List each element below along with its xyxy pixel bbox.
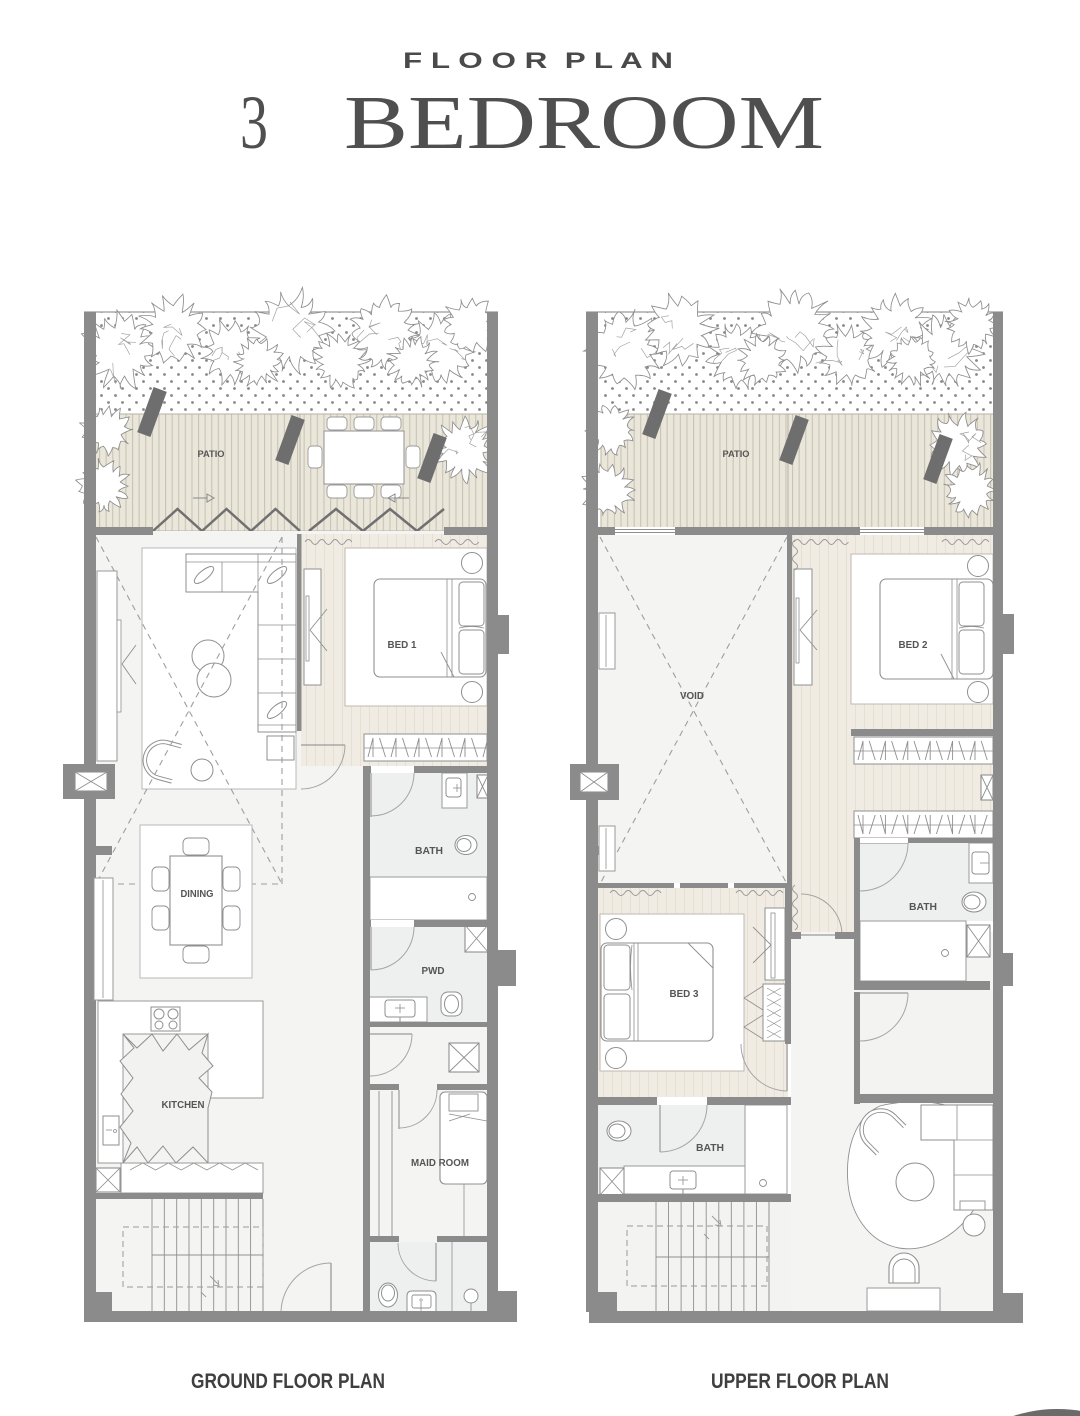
- svg-text:BED 3: BED 3: [670, 989, 699, 1000]
- svg-text:UPPER FLOOR PLAN: UPPER FLOOR PLAN: [711, 1370, 889, 1393]
- svg-text:BEDROOM: BEDROOM: [344, 81, 824, 165]
- svg-text:3: 3: [240, 81, 268, 165]
- svg-text:VOID: VOID: [680, 691, 704, 702]
- svg-text:PWD: PWD: [422, 966, 445, 977]
- svg-text:GROUND FLOOR PLAN: GROUND FLOOR PLAN: [191, 1370, 385, 1393]
- svg-text:BED 2: BED 2: [899, 640, 928, 651]
- svg-text:PATIO: PATIO: [723, 449, 750, 460]
- svg-text:KITCHEN: KITCHEN: [162, 1100, 205, 1111]
- svg-text:BATH: BATH: [909, 902, 937, 913]
- svg-text:DINING: DINING: [181, 889, 214, 900]
- svg-text:PATIO: PATIO: [198, 449, 225, 460]
- svg-text:BED 1: BED 1: [388, 640, 417, 651]
- svg-text:BATH: BATH: [696, 1143, 724, 1154]
- svg-text:BATH: BATH: [415, 846, 443, 857]
- svg-text:MAID ROOM: MAID ROOM: [411, 1158, 469, 1169]
- svg-text:F L O O R P L A N: F L O O R P L A N: [403, 48, 673, 73]
